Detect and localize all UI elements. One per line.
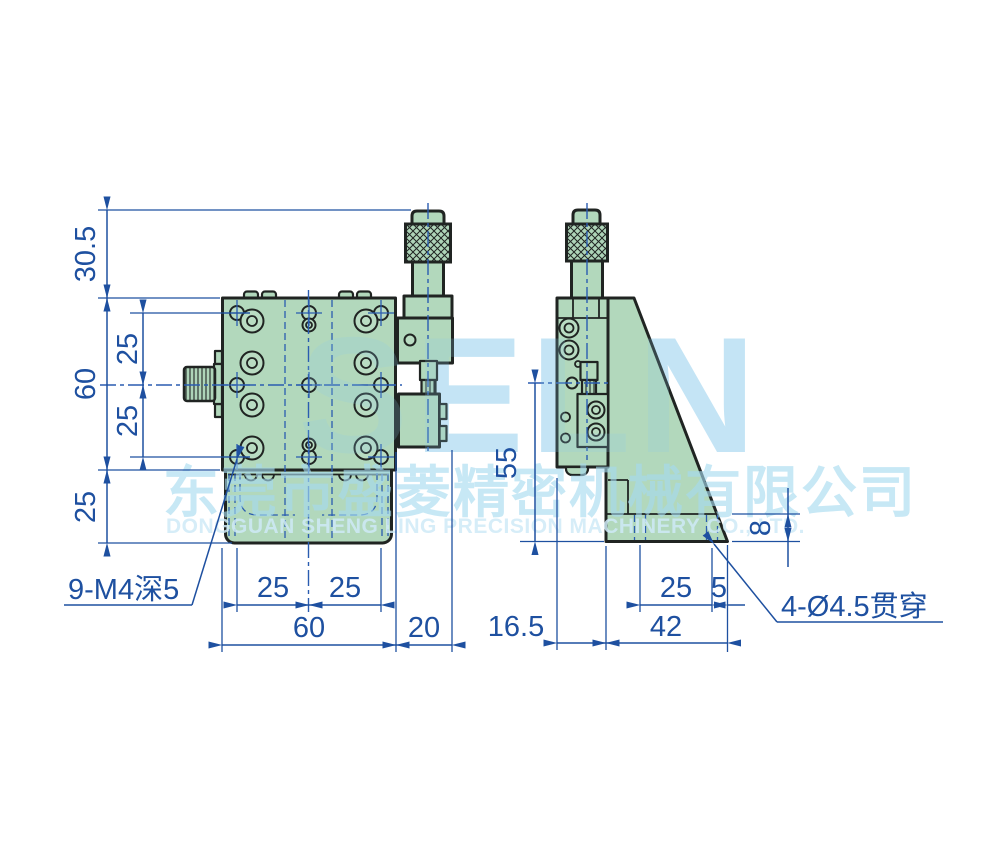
dim-text-25-lower: 25 (112, 405, 144, 437)
dim-text-25-right: 25 (329, 572, 361, 604)
drawing-page: SELN (0, 0, 1001, 853)
watermark-company-en: DONGGUAN SHENG LING PRECISION MACHINERY … (166, 515, 805, 538)
dim-text-25-upper: 25 (112, 333, 144, 365)
dim-text-25-left: 25 (257, 572, 289, 604)
dim-text-55: 55 (491, 447, 523, 479)
adjust-knob-knurled (184, 367, 215, 401)
knob-tab (215, 351, 222, 364)
technical-drawing: SELN (0, 0, 1001, 853)
dim-text-30-5: 30.5 (70, 226, 102, 282)
dim-text-5: 5 (711, 572, 727, 604)
callout-through-text: 4-Ø4.5贯穿 (781, 590, 928, 623)
dim-text-20: 20 (408, 612, 440, 644)
dim-text-42: 42 (650, 611, 682, 643)
dim-text-25-side: 25 (660, 572, 692, 604)
dim-text-25-base: 25 (70, 491, 102, 523)
knob-tab (215, 404, 222, 417)
dim-text-60v: 60 (70, 368, 102, 400)
dim-text-16-5: 16.5 (488, 611, 544, 643)
dim-text-60h: 60 (293, 612, 325, 644)
dim-text-8: 8 (745, 520, 777, 536)
callout-m4-text: 9-M4深5 (68, 574, 179, 606)
watermark-letters-tint: SELN (298, 303, 762, 487)
